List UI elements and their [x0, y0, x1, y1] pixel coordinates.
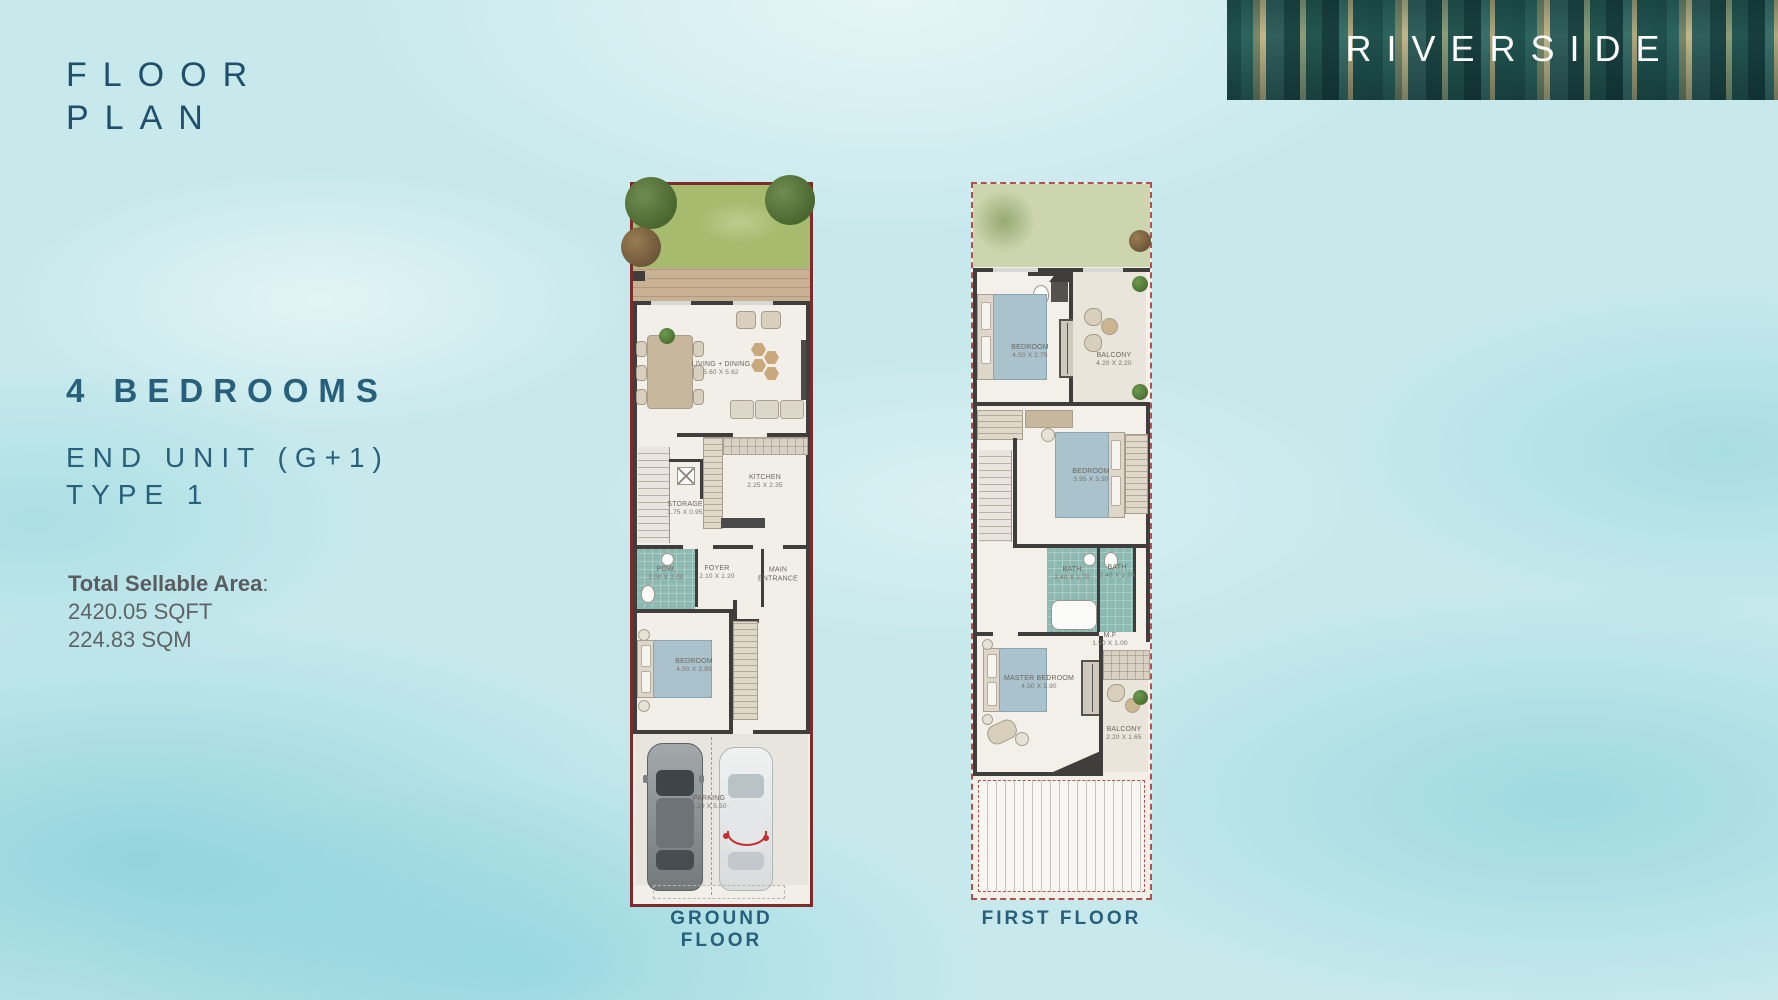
wall [633, 609, 729, 613]
balcony-table [1101, 318, 1118, 335]
car [719, 747, 773, 891]
wall [1028, 272, 1068, 276]
bathtub-icon [1051, 600, 1097, 630]
dining-chair [636, 341, 647, 357]
wall [973, 772, 1103, 776]
sellable-area-label: Total Sellable Area: [68, 570, 269, 598]
room-label-living-dining: LIVING + DINING5.60 X 5.62 [686, 360, 756, 378]
room-label-balcony-2: BALCONY2.20 X 1.65 [1102, 725, 1146, 743]
pillow [981, 302, 991, 330]
plant-icon [659, 328, 675, 344]
room-label-parking: PARKING6.20 X 5.50 [674, 794, 744, 812]
room-label-bedroom-2: BEDROOM3.95 X 3.30 [1056, 467, 1126, 485]
room-label-bedroom-1: BEDROOM4.50 X 2.75 [995, 343, 1065, 361]
tree-icon [973, 190, 1035, 252]
room-label-bath-2: BATH2.40 X 1.20 [1097, 563, 1137, 581]
staircase [638, 447, 670, 543]
balcony-chair [1084, 334, 1102, 352]
page-title: FLOOR PLAN [66, 54, 263, 139]
car [647, 743, 703, 891]
wardrobe [1125, 434, 1148, 514]
plant-icon [1132, 384, 1148, 400]
pillow [641, 645, 651, 667]
sellable-area-block: Total Sellable Area: 2420.05 SQFT 224.83… [68, 570, 269, 654]
wall [1013, 438, 1017, 544]
coffee-table [764, 351, 779, 364]
plant-icon [1133, 690, 1148, 705]
dining-chair [636, 365, 647, 381]
parking-stall-line [711, 737, 712, 895]
tree-icon [625, 177, 677, 229]
first-floor-plan: BEDROOM4.50 X 2.75 BALCONY4.20 X 2.20 BE… [971, 182, 1152, 900]
bedrooms-heading: 4 BEDROOMS [66, 372, 388, 410]
nightstand [982, 714, 993, 725]
wall [669, 459, 703, 462]
wall [1053, 750, 1103, 772]
dining-chair [693, 389, 704, 405]
sofa [780, 400, 804, 419]
page-background: FLOOR PLAN RIVERSIDE 4 BEDROOMS END UNIT… [0, 0, 1778, 1000]
wall [713, 545, 753, 549]
room-label-foyer: FOYER2.10 X 1.20 [682, 564, 752, 582]
dining-chair [636, 389, 647, 405]
unit-type-heading: END UNIT (G+1) TYPE 1 [66, 440, 390, 514]
wall [783, 545, 810, 549]
terrace-pergola [978, 780, 1145, 892]
blanket [993, 294, 1047, 380]
unit-type-line2: TYPE 1 [66, 477, 390, 514]
room-label-bath-1: BATH2.40 X 1.70 [1049, 565, 1095, 583]
deck-step [633, 271, 645, 281]
room-label-main-entrance: MAIN ENTRANCE [756, 566, 800, 585]
wall [1133, 548, 1136, 632]
room-label-bedroom: BEDROOM4.50 X 3.90 [659, 657, 729, 675]
desk [1025, 410, 1073, 428]
kitchen-island [721, 518, 765, 528]
first-floor-caption: FIRST FLOOR [971, 908, 1152, 932]
coffee-table [764, 367, 779, 380]
desk-chair [1041, 428, 1055, 442]
armchair [736, 311, 756, 329]
balcony-chair [1084, 308, 1102, 326]
balcony-chair [1107, 684, 1125, 702]
pouf [1015, 732, 1029, 746]
window [651, 301, 691, 305]
page-title-line2: PLAN [66, 97, 263, 140]
plant-icon [1129, 230, 1151, 252]
sellable-area-sqm: 224.83 SQM [68, 626, 269, 654]
dining-chair [693, 341, 704, 357]
toilet-icon [641, 585, 655, 603]
room-label-mf: M.F1.90 X 1.00 [1087, 631, 1133, 649]
coffee-table [751, 343, 766, 356]
car-mirror [699, 775, 704, 783]
tv-console [801, 340, 806, 400]
brand-banner: RIVERSIDE [1227, 0, 1778, 100]
wardrobe [733, 621, 758, 720]
sellable-area-sqft: 2420.05 SQFT [68, 598, 269, 626]
ground-floor-caption: GROUND FLOOR [630, 908, 813, 932]
wall [806, 301, 810, 734]
tree-icon [621, 227, 661, 267]
brand-logo-text: RIVERSIDE [1227, 28, 1778, 70]
plant-icon [1132, 276, 1148, 292]
storage-door-icon [677, 467, 695, 485]
kitchen-counter [723, 437, 808, 455]
driveway-line [653, 885, 785, 899]
window [733, 301, 773, 305]
sofa [755, 400, 779, 419]
wall [1097, 548, 1100, 632]
nightstand [638, 629, 650, 641]
armchair [761, 311, 781, 329]
closet [977, 410, 1023, 440]
wall [700, 459, 703, 499]
unit-type-line1: END UNIT (G+1) [66, 440, 390, 477]
pillow [641, 671, 651, 693]
nightstand [982, 639, 993, 650]
wall [973, 402, 1150, 406]
room-label-storage: STORAGE1.75 X 0.95 [650, 500, 720, 518]
page-title-line1: FLOOR [66, 54, 263, 97]
pillow [981, 336, 991, 364]
room-label-kitchen: KITCHEN2.25 X 2.35 [730, 473, 800, 491]
room-label-master-bedroom: MASTER BEDROOM4.50 X 3.90 [992, 674, 1087, 692]
wall [973, 632, 993, 636]
nightstand [638, 700, 650, 712]
pillow [1111, 440, 1121, 470]
car-mirror [643, 775, 648, 783]
deck [633, 268, 810, 305]
staircase [979, 450, 1012, 542]
room-label-balcony-1: BALCONY4.20 X 2.20 [1079, 351, 1149, 369]
pergola-hatch [1103, 650, 1150, 680]
vanity [1051, 282, 1068, 302]
balcony-floor [1073, 272, 1146, 402]
ground-floor-plan: LIVING + DINING5.60 X 5.62 KITCHEN2.25 X… [630, 182, 813, 907]
tree-icon [765, 175, 815, 225]
sofa [730, 400, 754, 419]
